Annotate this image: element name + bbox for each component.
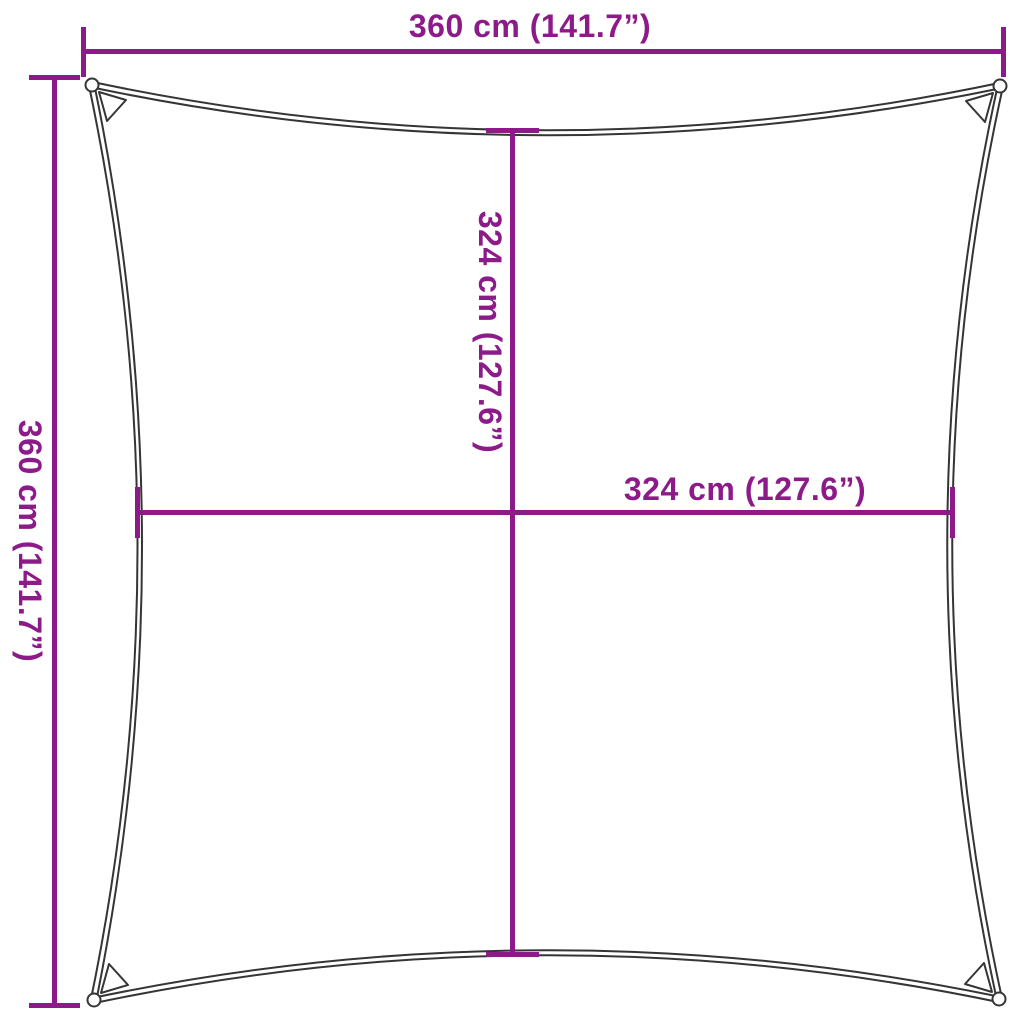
dim-line-inner-height xyxy=(510,130,515,957)
dim-tick-top-width-right xyxy=(1001,27,1006,77)
dim-line-left-height xyxy=(52,76,57,1007)
corner-grommet-bottom-left xyxy=(88,994,101,1007)
dim-tick-left-height-top xyxy=(29,75,80,80)
dim-label-inner-width: 324 cm (127.6”) xyxy=(624,471,866,507)
dim-cap-inner-height-top xyxy=(486,128,539,133)
corner-reinforcement-top-right xyxy=(966,93,993,122)
dim-line-top-width xyxy=(83,49,1006,54)
corner-grommet-top-right xyxy=(994,80,1007,93)
dim-label-inner-height: 324 cm (127.6”) xyxy=(472,211,508,453)
dim-label-left-height: 360 cm (141.7”) xyxy=(12,420,48,662)
dim-line-inner-width xyxy=(137,510,955,515)
corner-reinforcement-top-left xyxy=(99,92,126,121)
corner-grommet-top-left xyxy=(86,79,99,92)
dim-tick-left-height-bottom xyxy=(29,1003,80,1008)
corner-reinforcement-bottom-right xyxy=(965,963,992,992)
dim-cap-inner-height-bottom xyxy=(486,952,539,957)
dim-cap-inner-width-right xyxy=(950,487,955,538)
sail-outer-edge xyxy=(88,81,1004,1004)
corner-grommet-bottom-right xyxy=(993,993,1006,1006)
dim-cap-inner-width-left xyxy=(135,487,140,538)
corner-reinforcement-bottom-left xyxy=(101,964,128,993)
sail-inner-edge xyxy=(95,88,997,997)
dim-label-top-width: 360 cm (141.7”) xyxy=(70,8,990,44)
product-dimension-diagram: 360 cm (141.7”) 360 cm (141.7”) 324 cm (… xyxy=(0,0,1024,1024)
